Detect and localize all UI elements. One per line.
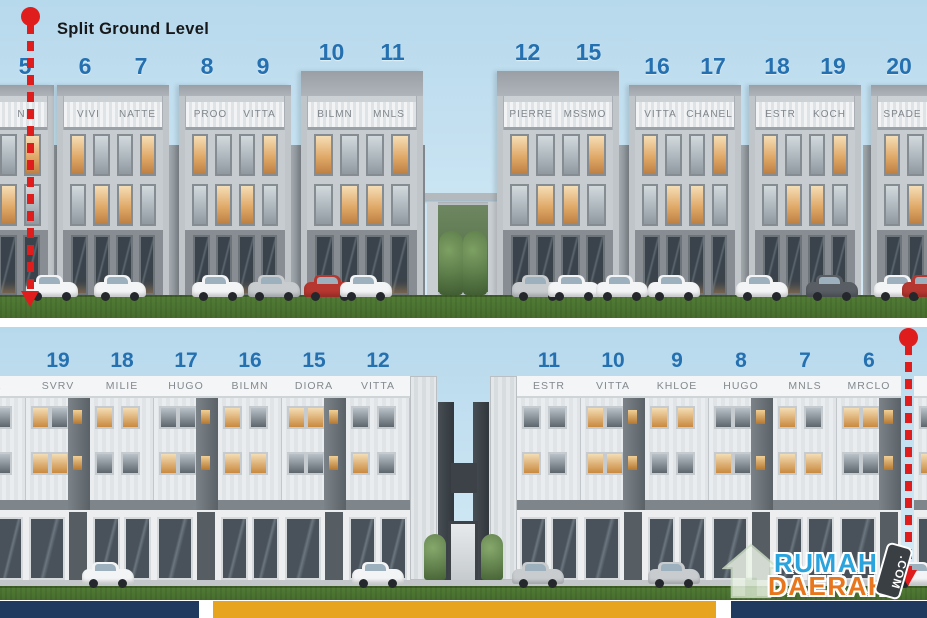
unit-name-label: VITTA	[346, 376, 410, 398]
unit-name-label: PIERRE	[504, 109, 558, 120]
parapet	[497, 71, 619, 96]
ground-storefront	[581, 500, 645, 580]
unit-number-label: 18	[749, 53, 805, 80]
dashed-line	[905, 345, 912, 570]
shophouse-unit: 9 KHLOE	[645, 349, 709, 580]
ground-storefront	[0, 500, 26, 580]
unit-number-label: 7	[773, 349, 837, 376]
logo-word-daerah: DAERAH	[768, 571, 888, 602]
upper-floors	[90, 398, 154, 500]
footer-bar-navy-right	[731, 601, 927, 618]
shophouse-building: 67 VIVINATTE	[57, 53, 169, 295]
ground-storefront	[218, 500, 282, 580]
car	[82, 569, 134, 584]
gate-post	[427, 202, 438, 295]
upper-floors	[154, 398, 218, 500]
entrance-gate	[427, 202, 499, 295]
parapet	[179, 85, 291, 96]
upper-floors	[282, 398, 346, 500]
shophouse-unit: 18 MILIE	[90, 349, 154, 580]
car	[596, 282, 648, 297]
car	[248, 282, 300, 297]
ground-storefront	[154, 500, 218, 580]
unit-number-label: 7	[113, 53, 169, 80]
shop-nameband: VIVINATTE	[64, 102, 162, 130]
car	[548, 282, 600, 297]
shophouse-unit: 11 ESTR	[517, 349, 581, 580]
upper-floors	[26, 398, 90, 500]
shop-nameband: ESTRKOCH	[756, 102, 854, 130]
tree	[424, 534, 446, 580]
parapet	[749, 85, 861, 96]
unit-name-label: VITTA	[235, 109, 284, 120]
tree	[463, 231, 487, 295]
footer-bar-orange	[213, 601, 716, 618]
shophouse-building: 89 PROOVITTA	[179, 53, 291, 295]
stair-tower	[196, 398, 218, 510]
car	[352, 569, 404, 584]
car	[736, 282, 788, 297]
shophouse-unit: 17 HUGO	[154, 349, 218, 580]
parapet	[57, 85, 169, 96]
unit-name-label: VITTA	[636, 109, 685, 120]
unit-name-label: MSSMO	[558, 109, 612, 120]
car	[192, 282, 244, 297]
unit-name-label: VITTA	[581, 376, 645, 398]
shophouse-building: 1011 BILMNMNLS	[301, 39, 423, 295]
stair-tower	[623, 398, 645, 510]
upper-floors	[837, 398, 901, 500]
unit-number-label: 16	[218, 349, 282, 376]
unit-number-label: 10	[581, 349, 645, 376]
unit-number-label: 12	[497, 39, 558, 66]
upper-floors	[517, 398, 581, 500]
upper-floors	[0, 398, 26, 500]
stair-tower	[751, 398, 773, 510]
upper-floor-windows	[635, 130, 735, 180]
upper-floor-windows	[63, 130, 163, 180]
unit-name-label: MILIE	[90, 376, 154, 398]
logo-com-badge: .COM	[873, 541, 914, 600]
upper-floors	[645, 398, 709, 500]
unit-name-label: DIORA	[282, 376, 346, 398]
mid-floor-windows	[307, 180, 417, 230]
shophouse-building: 1215 PIERREMSSMO	[497, 39, 619, 295]
unit-name-label: ESTR	[756, 109, 805, 120]
car	[648, 569, 700, 584]
stair-tower	[324, 398, 346, 510]
mid-floor-windows	[185, 180, 285, 230]
unit-number-label: 10	[301, 39, 362, 66]
unit-number-label: 19	[26, 349, 90, 376]
unit-name-label: TA	[0, 376, 26, 398]
unit-name-label: CHANEL	[685, 109, 734, 120]
shophouse-unit: 15 DIORA	[282, 349, 346, 580]
split-level-marker-left	[21, 7, 40, 307]
mid-floor-windows	[755, 180, 855, 230]
mid-floor-windows	[635, 180, 735, 230]
shop-door	[197, 512, 215, 580]
unit-name-label: SPADE	[878, 109, 927, 120]
unit-name-label: KOCH	[805, 109, 854, 120]
shop-nameband: SPADE	[878, 102, 927, 130]
car	[806, 282, 858, 297]
shop-door	[624, 512, 642, 580]
mid-floor-windows	[63, 180, 163, 230]
parapet	[629, 85, 741, 96]
dashed-line	[27, 24, 34, 291]
unit-number-label: 20	[871, 53, 927, 80]
ground-storefront	[282, 500, 346, 580]
upper-floors	[709, 398, 773, 500]
shophouse-unit: 19 SVRV	[26, 349, 90, 580]
building-facade: PIERREMSSMO	[497, 71, 619, 295]
unit-name-label: ESTR	[517, 376, 581, 398]
stair-tower	[879, 398, 901, 510]
unit-name-label: NATTE	[113, 109, 162, 120]
unit-number-label: 17	[154, 349, 218, 376]
unit-name-label: HUGO	[154, 376, 218, 398]
central-gate	[410, 375, 517, 580]
upper-floor-windows	[307, 130, 417, 180]
unit-number-label: 15	[282, 349, 346, 376]
shophouse-building: 1617 VITTACHANEL	[629, 53, 741, 295]
tree	[481, 534, 503, 580]
unit-name-label: HUGO	[709, 376, 773, 398]
unit-number-label: 18	[90, 349, 154, 376]
unit-number-label: 9	[235, 53, 291, 80]
unit-name-label: MRCLO	[837, 376, 901, 398]
unit-number-label: 12	[346, 349, 410, 376]
unit-number-label: 9	[645, 349, 709, 376]
building-facade: SPADE	[871, 85, 927, 295]
grass-strip	[0, 295, 927, 318]
unit-number-label: 0	[0, 349, 26, 376]
shophouse-building: 20 SPADE	[871, 53, 927, 295]
unit-number-label: 8	[709, 349, 773, 376]
split-ground-level-label: Split Ground Level	[57, 20, 209, 39]
shop-nameband: PROOVITTA	[186, 102, 284, 130]
top-elevation-panel: 5 N 67 VIVINATTE 89 PROOVITTA 1011 BILMN…	[0, 0, 927, 318]
unit-name-label: PROO	[186, 109, 235, 120]
shop-nameband: VITTACHANEL	[636, 102, 734, 130]
unit-name-label: KHLOE	[645, 376, 709, 398]
unit-number-label: 15	[558, 39, 619, 66]
brochure-canvas: 5 N 67 VIVINATTE 89 PROOVITTA 1011 BILMN…	[0, 0, 927, 618]
car	[94, 282, 146, 297]
upper-floor-windows	[755, 130, 855, 180]
car	[340, 282, 392, 297]
unit-number-label: 11	[362, 39, 423, 66]
arrow-down-icon	[21, 291, 39, 307]
parapet	[871, 85, 927, 96]
car	[648, 282, 700, 297]
building-facade: VIVINATTE	[57, 85, 169, 295]
shophouse-building: 1819 ESTRKOCH	[749, 53, 861, 295]
ground-storefront	[26, 500, 90, 580]
building-facade: BILMNMNLS	[301, 71, 423, 295]
upper-floors	[218, 398, 282, 500]
unit-number-label: 11	[517, 349, 581, 376]
gate-door	[451, 524, 475, 580]
unit-name-label: BILMN	[218, 376, 282, 398]
shop-nameband: PIERREMSSMO	[504, 102, 612, 130]
unit-number-label: 6	[57, 53, 113, 80]
shophouse-unit: 16 BILMN	[218, 349, 282, 580]
upper-floor-windows	[185, 130, 285, 180]
car	[902, 282, 927, 297]
building-facade: VITTACHANEL	[629, 85, 741, 295]
unit-number-label: 16	[629, 53, 685, 80]
unit-name-label: BILMN	[308, 109, 362, 120]
tree	[439, 231, 463, 295]
footer-bar-navy-left	[0, 601, 199, 618]
stair-tower	[68, 398, 90, 510]
unit-number-label: 8	[179, 53, 235, 80]
shop-door	[325, 512, 343, 580]
parapet	[301, 71, 423, 96]
upper-floor-windows	[503, 130, 613, 180]
upper-floor-windows	[877, 130, 927, 180]
unit-name-label: VIVI	[64, 109, 113, 120]
rumahdaerah-watermark: RUMAH DAERAH .COM	[720, 538, 925, 602]
unit-name-label: MNLS	[362, 109, 416, 120]
shophouse-wing: 0 TA 19 SVRV 18 MILIE 17 HUGO	[0, 349, 410, 580]
unit-number-label: 6	[837, 349, 901, 376]
building-facade: ESTRKOCH	[749, 85, 861, 295]
shophouse-unit: 12 VITTA	[346, 349, 410, 580]
mid-floor-windows	[877, 180, 927, 230]
upper-floors	[581, 398, 645, 500]
shophouse-unit: 0 TA	[0, 349, 26, 580]
shophouse-unit: 10 VITTA	[581, 349, 645, 580]
unit-name-label: MNLS	[773, 376, 837, 398]
unit-name-label: SVRV	[26, 376, 90, 398]
unit-number-label: 17	[685, 53, 741, 80]
shop-nameband: BILMNMNLS	[308, 102, 416, 130]
upper-floors	[346, 398, 410, 500]
building-facade: PROOVITTA	[179, 85, 291, 295]
car	[512, 569, 564, 584]
upper-floors	[773, 398, 837, 500]
unit-number-label: 19	[805, 53, 861, 80]
mid-floor-windows	[503, 180, 613, 230]
